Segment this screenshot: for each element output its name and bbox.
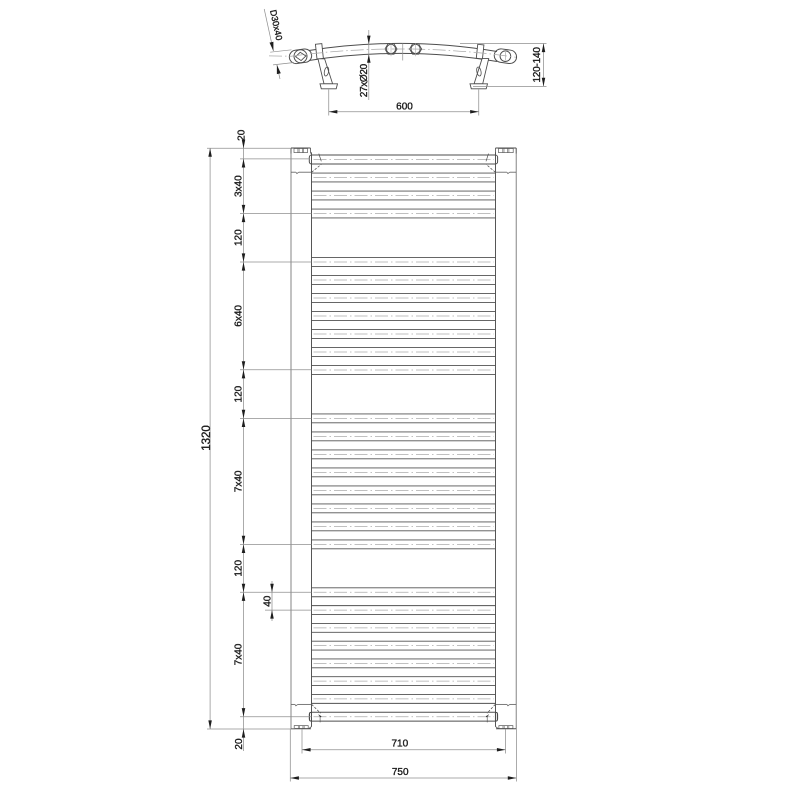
svg-text:120-140: 120-140	[532, 47, 543, 83]
svg-text:7x40: 7x40	[234, 470, 245, 492]
svg-text:120: 120	[234, 385, 245, 402]
svg-text:40: 40	[263, 595, 274, 607]
svg-text:3x40: 3x40	[234, 175, 245, 197]
svg-text:120: 120	[234, 229, 245, 246]
svg-text:20: 20	[237, 129, 248, 141]
svg-text:20: 20	[234, 738, 245, 750]
svg-text:600: 600	[396, 101, 413, 112]
svg-text:710: 710	[391, 739, 408, 750]
svg-text:750: 750	[392, 767, 409, 778]
svg-text:120: 120	[234, 560, 245, 577]
svg-text:7x40: 7x40	[234, 643, 245, 665]
svg-text:1320: 1320	[201, 425, 213, 451]
svg-text:27xØ20: 27xØ20	[359, 63, 370, 97]
svg-text:6x40: 6x40	[234, 305, 245, 327]
